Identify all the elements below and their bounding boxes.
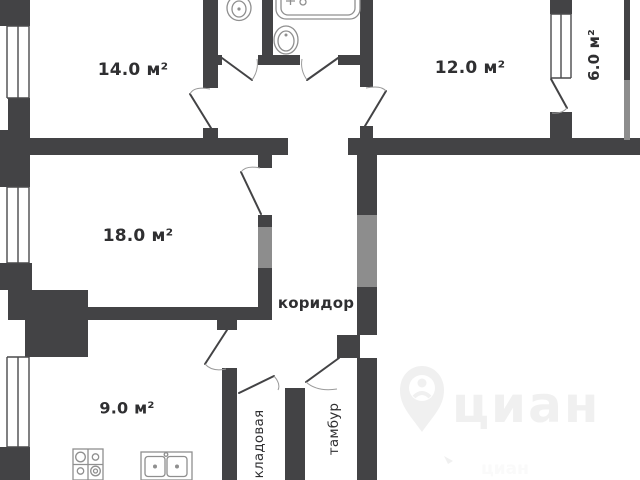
wall: [8, 138, 288, 155]
wall: [360, 126, 373, 155]
bathtub-icon: [276, 0, 360, 19]
window-icon: [7, 187, 29, 263]
wall: [222, 368, 237, 480]
doors: [190, 58, 567, 393]
wall: [357, 287, 377, 335]
wall: [357, 155, 377, 215]
stove-icon: [73, 449, 103, 480]
washbasin-icon: [274, 26, 298, 54]
wall: [203, 128, 218, 155]
wall: [337, 335, 360, 358]
kitchen-sink-icon: [141, 452, 192, 480]
wall: [258, 150, 272, 168]
vent-block: [25, 290, 88, 357]
window-icon: [7, 357, 29, 447]
wall: [0, 263, 8, 290]
wall: [0, 447, 30, 480]
wall: [203, 55, 222, 65]
balcony-glazing-wall: [624, 0, 630, 80]
cian-watermark: циан циан: [400, 366, 600, 479]
room-14-label: 14.0 м²: [98, 60, 169, 80]
cian-pin-logo-icon: [400, 366, 444, 432]
door-swing-icon: [239, 376, 279, 393]
door-swing-icon: [241, 167, 261, 214]
wall: [357, 358, 377, 480]
balcony-label: 6.0 м²: [585, 29, 603, 81]
door-swing-icon: [306, 358, 339, 390]
storage-label: кладовая: [251, 410, 267, 479]
watermark-text: циан: [452, 376, 600, 434]
floor-plan: 14.0 м² 12.0 м² 6.0 м² 18.0 м² 9.0 м² ко…: [0, 0, 640, 480]
wall: [8, 155, 30, 187]
watermark-tick: [444, 456, 453, 464]
door-swing-icon: [190, 88, 211, 128]
balcony-glazing-wall: [624, 80, 630, 140]
room-18-label: 18.0 м²: [103, 226, 174, 246]
window-icon: [7, 26, 29, 98]
wall: [203, 0, 218, 88]
wall: [360, 0, 373, 87]
door-swing-icon: [302, 58, 338, 80]
kitchen-label: 9.0 м²: [99, 399, 154, 418]
watermark-text-small: циан: [481, 459, 529, 479]
wall: [258, 215, 272, 227]
wall: [258, 55, 300, 65]
wall: [217, 318, 237, 330]
corridor-label: коридор: [278, 294, 354, 312]
toilet-icon: [227, 0, 251, 21]
wall: [285, 388, 305, 480]
wall: [258, 268, 272, 320]
wall: [262, 0, 273, 57]
vestibule-label: тамбур: [326, 403, 342, 455]
door-swing-icon: [365, 87, 386, 126]
balcony-window-icon: [551, 14, 571, 78]
shaft-wall: [357, 215, 377, 287]
wall: [348, 138, 640, 155]
wall: [550, 0, 572, 14]
wall: [0, 130, 8, 187]
wall: [550, 112, 572, 138]
room-12-label: 12.0 м²: [435, 58, 506, 78]
wall: [0, 0, 30, 26]
door-swing-icon: [551, 79, 567, 113]
shaft-wall: [258, 227, 272, 268]
door-swing-icon: [205, 330, 227, 370]
door-swing-icon: [222, 58, 257, 80]
floor-plan-page: 14.0 м² 12.0 м² 6.0 м² 18.0 м² 9.0 м² ко…: [0, 0, 640, 480]
